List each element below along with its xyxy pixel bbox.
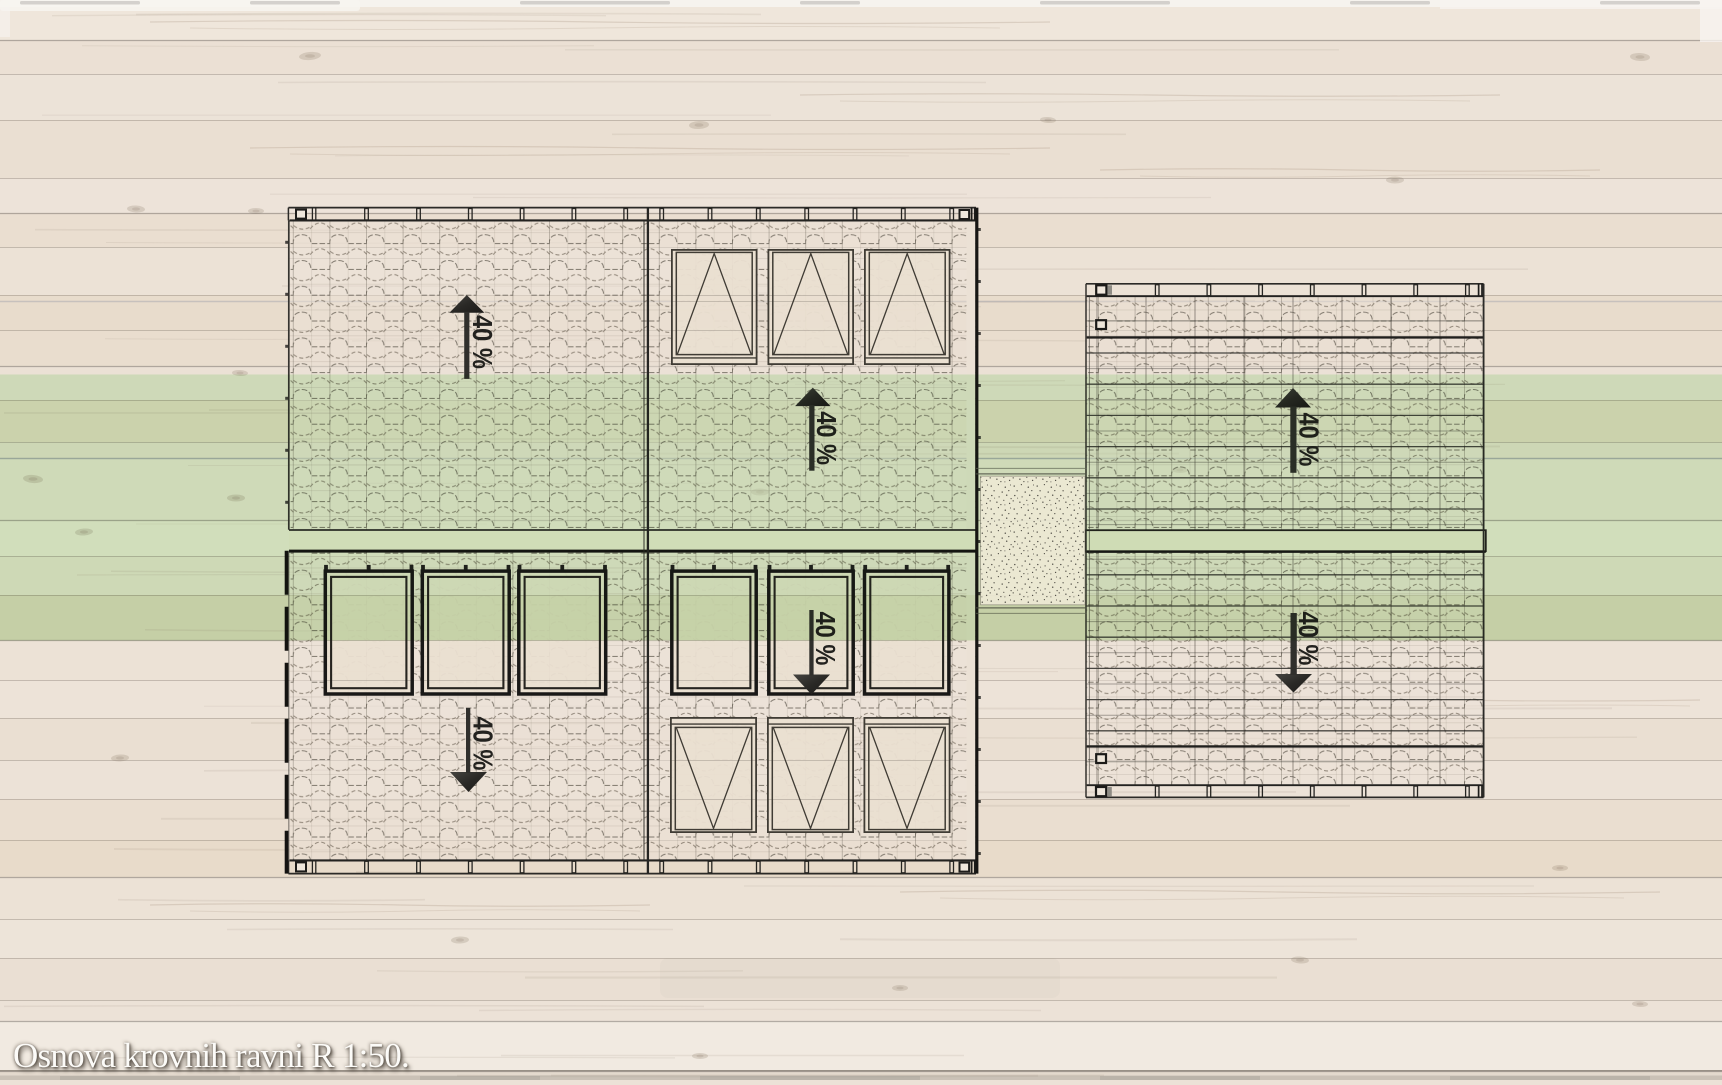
svg-text:40 %: 40 % xyxy=(467,717,497,771)
svg-text:40 %: 40 % xyxy=(467,315,497,369)
